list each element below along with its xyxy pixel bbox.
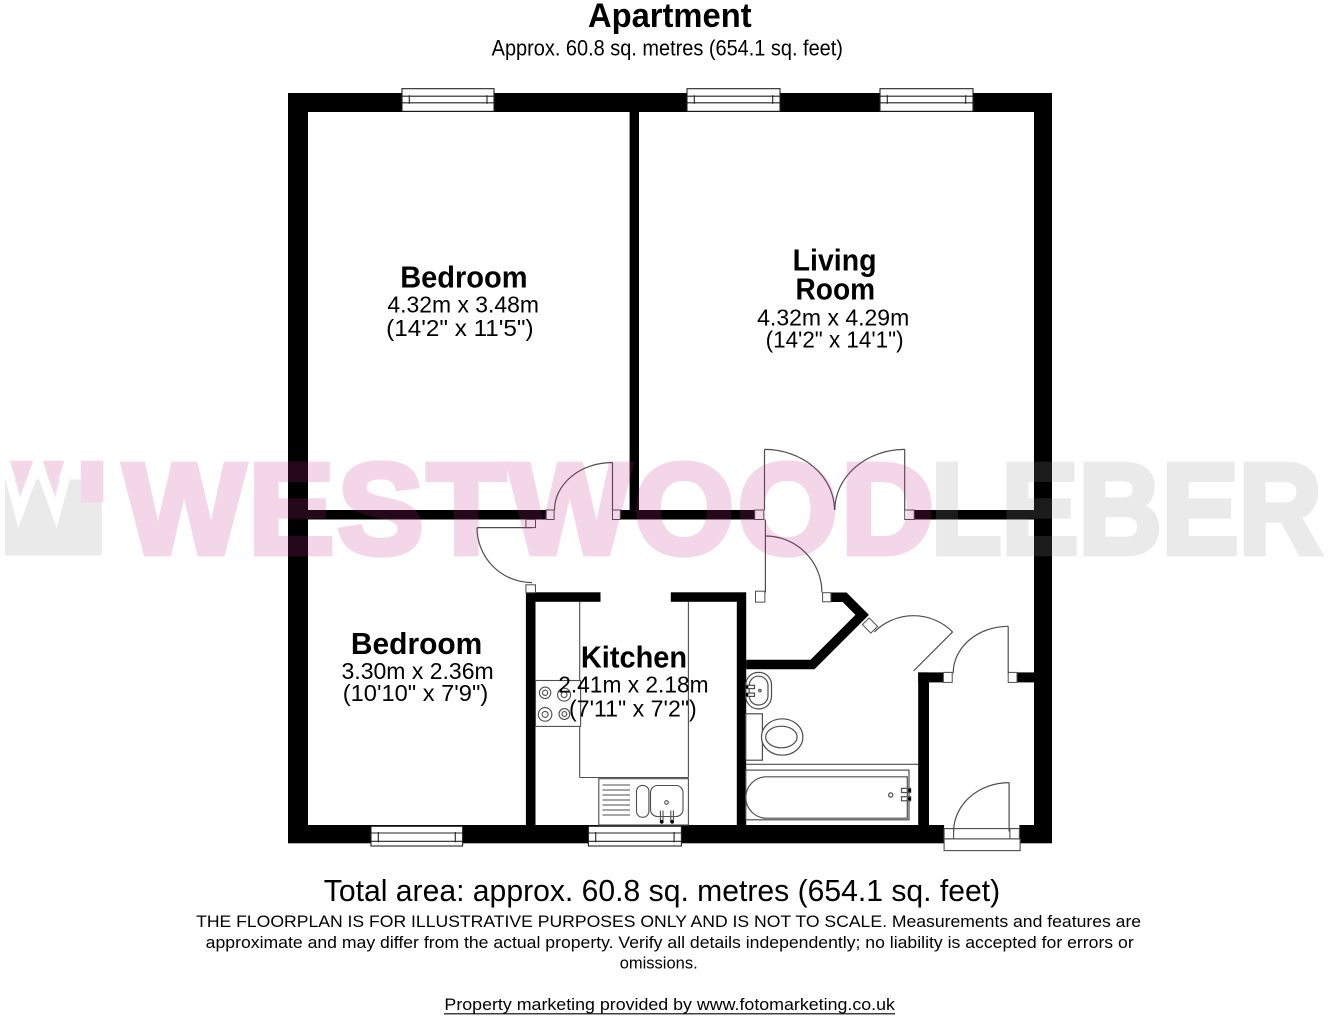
svg-text:approximate and may differ fro: approximate and may differ from the actu…	[206, 934, 1135, 952]
svg-text:WESTWOOD: WESTWOOD	[123, 437, 934, 581]
svg-text:Room: Room	[796, 272, 876, 307]
svg-text:Kitchen: Kitchen	[581, 640, 687, 675]
svg-text:4.32m x 3.48m: 4.32m x 3.48m	[387, 291, 539, 317]
svg-text:(14'2" x 14'1"): (14'2" x 14'1")	[766, 326, 904, 352]
svg-text:Apartment: Apartment	[588, 0, 752, 35]
svg-text:THE FLOORPLAN IS FOR ILLUSTRAT: THE FLOORPLAN IS FOR ILLUSTRATIVE PURPOS…	[196, 913, 1141, 931]
svg-text:Total area: approx. 60.8 sq. m: Total area: approx. 60.8 sq. metres (654…	[324, 873, 1000, 908]
svg-text:(14'2" x 11'5"): (14'2" x 11'5")	[386, 315, 534, 341]
svg-text:2.41m x 2.18m: 2.41m x 2.18m	[558, 672, 708, 698]
svg-text:omissions.: omissions.	[620, 954, 698, 972]
svg-text:(7'11" x 7'2"): (7'11" x 7'2")	[569, 696, 697, 722]
svg-text:LEBER: LEBER	[931, 437, 1322, 581]
svg-text:Approx. 60.8 sq. metres (654.1: Approx. 60.8 sq. metres (654.1 sq. feet)	[492, 35, 843, 60]
svg-text:Bedroom: Bedroom	[351, 626, 482, 661]
svg-text:Bedroom: Bedroom	[400, 259, 527, 294]
svg-text:Property marketing provided by: Property marketing provided by www.fotom…	[444, 996, 895, 1014]
svg-text:(10'10" x 7'9"): (10'10" x 7'9")	[343, 680, 489, 706]
